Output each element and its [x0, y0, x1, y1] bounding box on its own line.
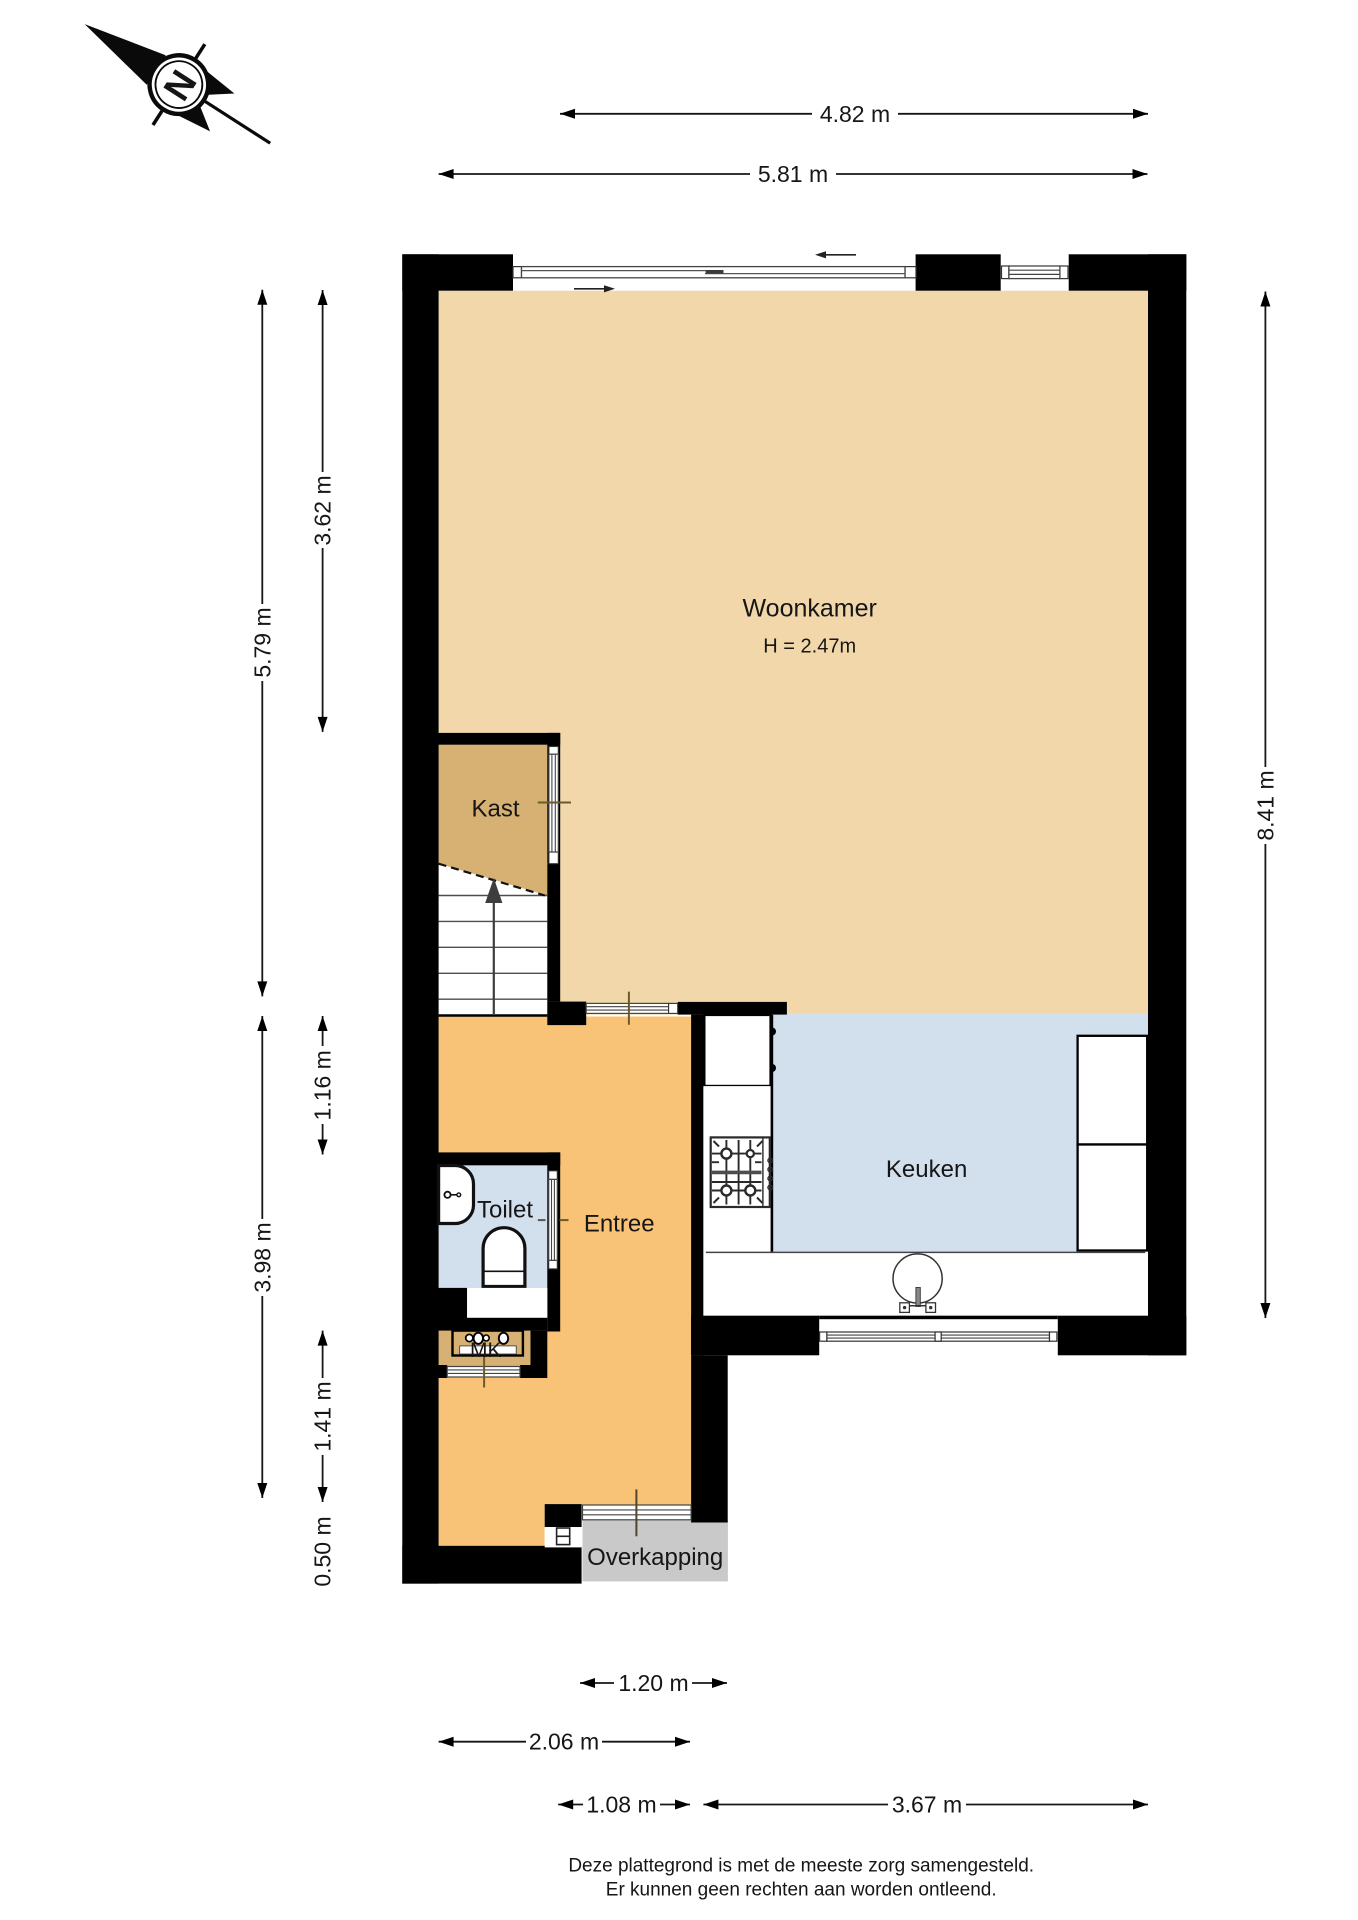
svg-text:1.08 m: 1.08 m	[586, 1791, 656, 1817]
svg-text:3.98 m: 3.98 m	[249, 1222, 275, 1292]
svg-text:Kast: Kast	[471, 796, 519, 823]
svg-text:0.50 m: 0.50 m	[310, 1516, 336, 1586]
svg-text:H = 2.47m: H = 2.47m	[763, 636, 856, 658]
svg-text:4.82 m: 4.82 m	[820, 101, 890, 127]
svg-text:Deze plattegrond is met de mee: Deze plattegrond is met de meeste zorg s…	[568, 1856, 1034, 1877]
svg-text:Entree: Entree	[584, 1211, 655, 1238]
svg-text:Keuken: Keuken	[886, 1156, 967, 1183]
svg-text:5.79 m: 5.79 m	[249, 607, 275, 677]
svg-text:Woonkamer: Woonkamer	[743, 594, 877, 622]
svg-text:1.41 m: 1.41 m	[310, 1381, 336, 1451]
svg-text:2.06 m: 2.06 m	[529, 1729, 599, 1755]
svg-text:3.62 m: 3.62 m	[310, 475, 336, 545]
svg-text:Er kunnen geen rechten aan wor: Er kunnen geen rechten aan worden ontlee…	[606, 1880, 997, 1901]
svg-text:1.16 m: 1.16 m	[310, 1050, 336, 1120]
svg-text:Toilet: Toilet	[477, 1197, 533, 1224]
svg-text:1.20 m: 1.20 m	[618, 1670, 688, 1696]
svg-text:5.81 m: 5.81 m	[758, 161, 828, 187]
svg-text:Overkapping: Overkapping	[587, 1544, 723, 1571]
svg-text:3.67 m: 3.67 m	[892, 1791, 962, 1817]
svg-text:MK: MK	[470, 1339, 502, 1362]
svg-text:8.41 m: 8.41 m	[1252, 770, 1278, 840]
